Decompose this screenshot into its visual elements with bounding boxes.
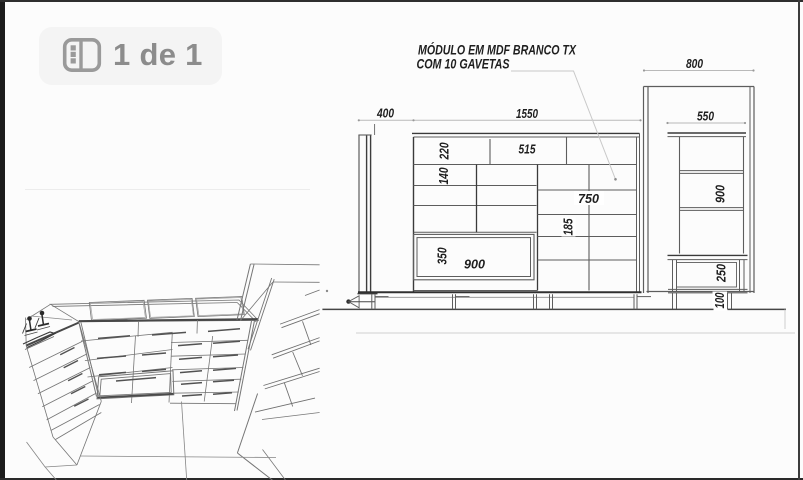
svg-text:MÓDULO EM MDF BRANCO TX: MÓDULO EM MDF BRANCO TX [418, 43, 577, 58]
svg-text:515: 515 [519, 143, 537, 157]
svg-text:350: 350 [436, 248, 450, 265]
svg-text:COM 10 GAVETAS: COM 10 GAVETAS [417, 57, 510, 72]
svg-text:400: 400 [376, 107, 394, 121]
svg-text:750: 750 [578, 192, 599, 206]
svg-text:1550: 1550 [516, 107, 538, 121]
svg-text:250: 250 [715, 264, 729, 283]
svg-text:185: 185 [562, 218, 576, 236]
svg-text:140: 140 [437, 168, 451, 185]
svg-text:220: 220 [438, 143, 452, 161]
svg-text:100: 100 [713, 293, 727, 309]
svg-text:900: 900 [714, 185, 728, 203]
svg-text:550: 550 [697, 110, 714, 124]
svg-text:900: 900 [464, 258, 485, 272]
svg-text:800: 800 [686, 57, 703, 71]
